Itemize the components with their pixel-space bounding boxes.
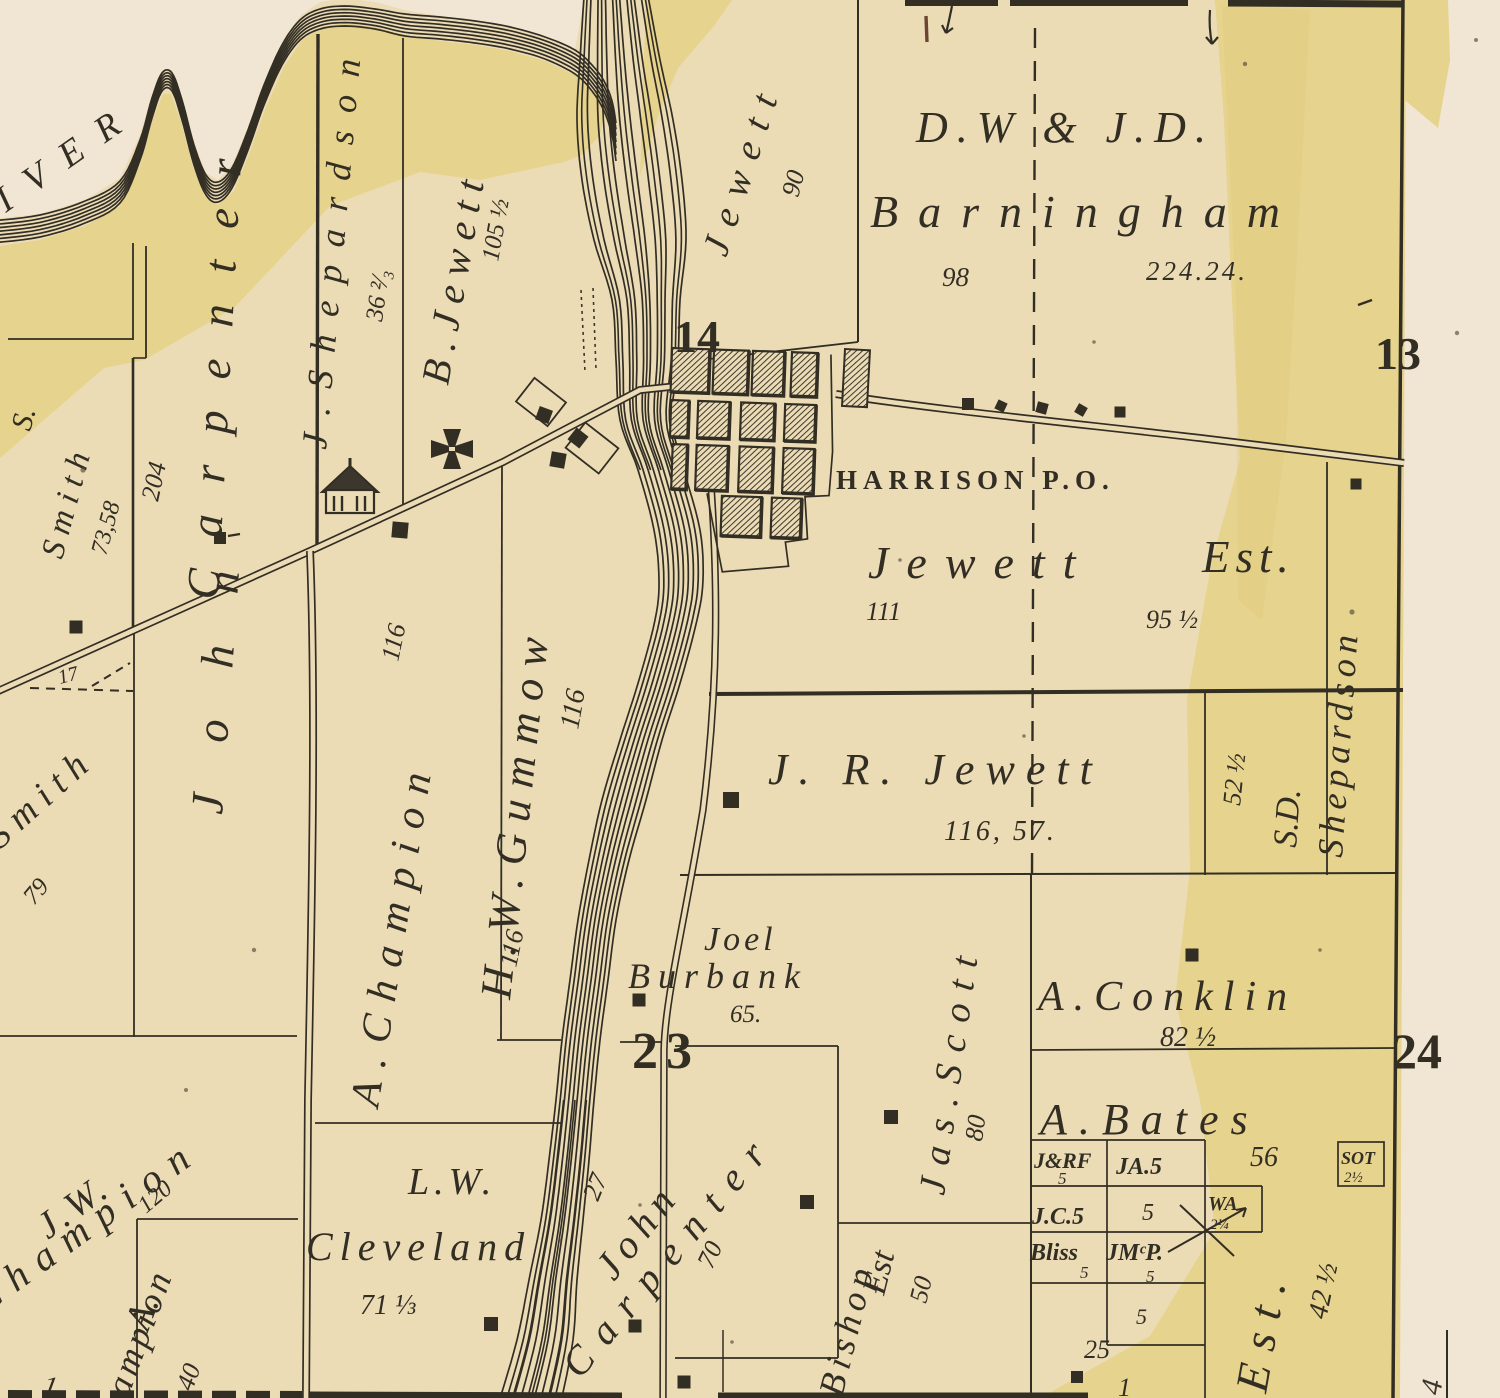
svg-text:J. R. Jewett: J. R. Jewett [768,745,1103,794]
svg-text:52 ½: 52 ½ [1217,752,1251,807]
svg-text:A.Conklin: A.Conklin [1035,974,1297,1020]
svg-text:5: 5 [1058,1169,1067,1188]
svg-text:5: 5 [1142,1200,1154,1226]
svg-text:224.24.: 224.24. [1146,256,1248,286]
svg-text:25: 25 [1084,1335,1110,1364]
svg-text:L.W.: L.W. [407,1161,496,1203]
svg-text:WA: WA [1208,1193,1238,1215]
svg-text:2¼: 2¼ [1210,1217,1229,1233]
svg-text:S.D.: S.D. [1267,788,1308,849]
svg-text:Cleveland: Cleveland [306,1224,531,1269]
svg-text:Est.: Est. [1201,532,1295,582]
svg-text:JA.5: JA.5 [1115,1154,1162,1180]
svg-text:24: 24 [1392,1023,1442,1079]
svg-text:A.Bates: A.Bates [1037,1095,1260,1144]
svg-text:71 ⅓: 71 ⅓ [360,1290,416,1321]
svg-text:D.W & J.D.: D.W & J.D. [915,103,1215,152]
svg-text:J.C.5: J.C.5 [1031,1204,1084,1230]
svg-text:Joel: Joel [704,921,777,958]
svg-text:1: 1 [1118,1373,1131,1398]
svg-text:5: 5 [1136,1304,1147,1329]
svg-text:2½: 2½ [1344,1170,1363,1186]
svg-text:JMᶜP.: JMᶜP. [1105,1240,1163,1266]
svg-text:14: 14 [674,311,720,362]
svg-text:Barningham: Barningham [870,186,1300,237]
svg-text:5: 5 [1080,1263,1089,1282]
svg-text:Burbank: Burbank [628,956,808,996]
svg-text:65.: 65. [730,1001,761,1028]
svg-text:23: 23 [632,1023,700,1080]
svg-text:56: 56 [1250,1142,1278,1173]
svg-text:13: 13 [1375,328,1421,379]
svg-text:5: 5 [1146,1267,1155,1286]
svg-text:116, 57.: 116, 57. [944,816,1057,847]
svg-text:HARRISON P.O.: HARRISON P.O. [836,465,1115,495]
svg-text:111: 111 [866,597,901,626]
svg-text:Bliss: Bliss [1029,1240,1078,1266]
svg-text:Jewett: Jewett [868,537,1094,588]
svg-text:SOT: SOT [1341,1148,1376,1168]
svg-text:82 ½: 82 ½ [1160,1022,1216,1053]
svg-text:80: 80 [959,1113,991,1143]
svg-text:98: 98 [942,262,970,292]
svg-text:95 ½: 95 ½ [1146,605,1198,634]
